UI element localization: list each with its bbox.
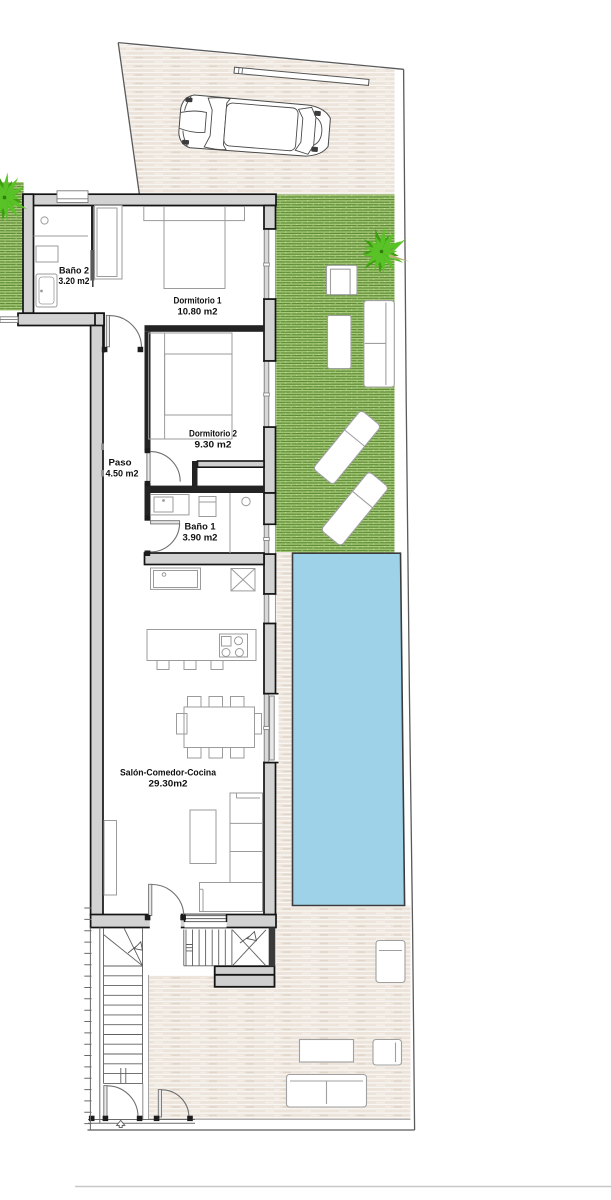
svg-text:Dormitorio 2: Dormitorio 2 — [189, 429, 237, 439]
svg-text:4.50 m2: 4.50 m2 — [106, 469, 139, 479]
svg-text:Salón-Comedor-Cocina: Salón-Comedor-Cocina — [120, 768, 216, 778]
svg-text:3.90 m2: 3.90 m2 — [183, 533, 218, 543]
svg-text:Baño 1: Baño 1 — [185, 522, 216, 532]
svg-text:Paso: Paso — [109, 458, 133, 468]
svg-text:3.20 m2: 3.20 m2 — [59, 276, 90, 286]
svg-text:29.30m2: 29.30m2 — [149, 779, 188, 789]
svg-text:Dormitorio 1: Dormitorio 1 — [174, 296, 222, 306]
svg-text:Baño 2: Baño 2 — [59, 266, 89, 276]
svg-text:10.80 m2: 10.80 m2 — [178, 307, 218, 317]
svg-text:9.30 m2: 9.30 m2 — [195, 440, 232, 450]
